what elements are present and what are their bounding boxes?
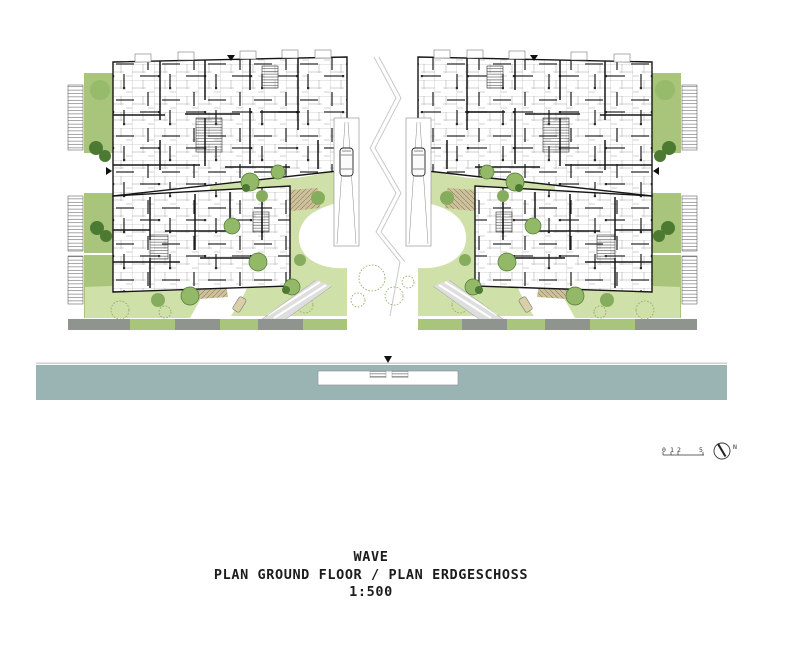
title-block: WAVE PLAN GROUND FLOOR / PLAN ERDGESCHOS… <box>214 549 528 602</box>
svg-text:2: 2 <box>677 446 681 454</box>
floor-plan-right <box>406 50 697 330</box>
plan-title: PLAN GROUND FLOOR / PLAN ERDGESCHOSS <box>214 567 528 585</box>
plan-scale: 1:500 <box>214 584 528 602</box>
svg-text:5: 5 <box>699 446 703 454</box>
svg-text:0: 0 <box>662 446 666 454</box>
scale-bar: 0 1 2 5 <box>662 446 704 455</box>
project-name: WAVE <box>214 549 528 567</box>
dock <box>318 371 458 385</box>
svg-text:N: N <box>733 443 737 451</box>
quay-edge-line <box>36 363 727 364</box>
site-plan-page: 0 1 2 5 N WAVE PLAN GROUND FLOOR / PLAN … <box>0 0 800 645</box>
pedestrian-path <box>370 57 405 316</box>
section-marker-icon <box>384 356 392 363</box>
floor-plan-left <box>68 50 359 330</box>
north-arrow-icon: N <box>714 443 737 459</box>
svg-text:1: 1 <box>670 446 674 454</box>
shrub-sketches <box>351 265 414 307</box>
